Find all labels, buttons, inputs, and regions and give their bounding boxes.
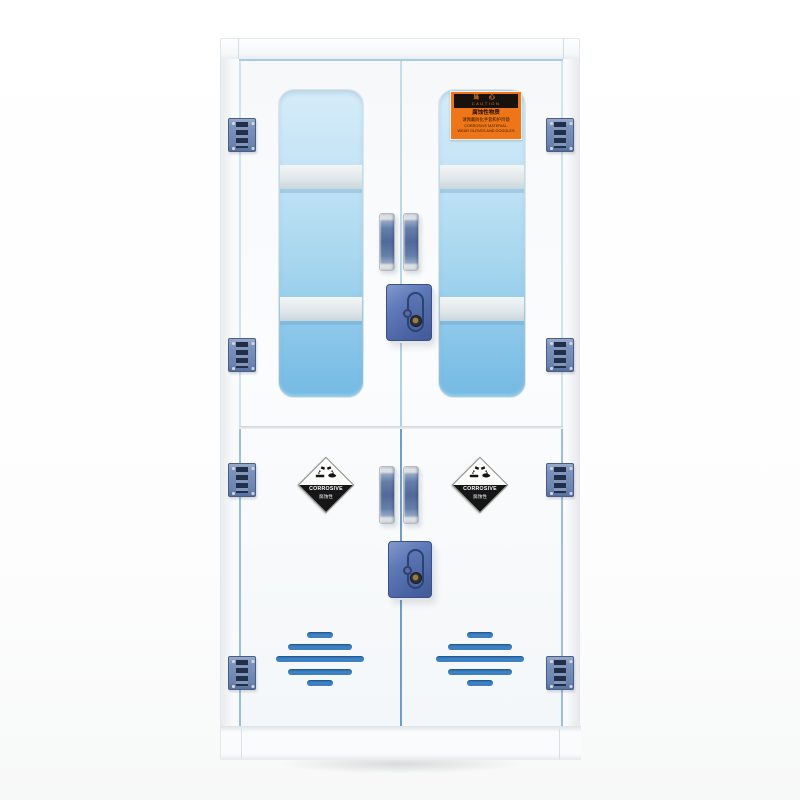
top-right-corner-seam xyxy=(563,39,564,59)
lock-cylinder xyxy=(410,572,422,584)
vent-group-left xyxy=(276,632,364,686)
caution-label-header: 当 心 CAUTION xyxy=(454,94,518,108)
vent-slot xyxy=(288,669,352,675)
kick-panel xyxy=(221,726,581,760)
corrosive-label-left: CORROSIVE 腐蚀性 xyxy=(298,457,354,513)
corrosive-word-cn: 腐蚀性 xyxy=(298,494,354,500)
kick-left-seam xyxy=(241,729,242,759)
corrosive-label-right: CORROSIVE 腐蚀性 xyxy=(452,457,508,513)
lower-left-door-handle xyxy=(379,466,395,524)
upper-left-door-handle xyxy=(379,213,395,271)
safety-cabinet: 当 心 CAUTION 腐蚀性物质 请佩戴防化手套和护目镜 CORROSIVE … xyxy=(220,38,580,760)
hinge xyxy=(228,656,256,690)
top-left-corner-seam xyxy=(238,39,239,59)
shelf xyxy=(280,165,362,189)
hinge xyxy=(228,338,256,372)
left-door-window xyxy=(278,89,364,398)
upper-door-lock xyxy=(386,284,432,341)
corrosive-word: CORROSIVE xyxy=(298,486,354,492)
lock-cylinder xyxy=(410,315,422,327)
corrosive-pictogram-icon xyxy=(469,466,492,479)
upper-door-gap xyxy=(400,61,402,426)
hinge xyxy=(228,118,256,152)
caution-instruction-en: WEAR GLOVES AND GOGGLES xyxy=(454,129,518,134)
vent-slot xyxy=(307,632,333,638)
vent-slot xyxy=(467,632,493,638)
hinge xyxy=(546,118,574,152)
caution-instruction-cn: 请佩戴防化手套和护目镜 xyxy=(454,117,518,123)
shelf xyxy=(280,297,362,321)
product-photo: 当 心 CAUTION 腐蚀性物质 请佩戴防化手套和护目镜 CORROSIVE … xyxy=(0,0,800,800)
lower-right-door-handle xyxy=(403,466,419,524)
vent-slot xyxy=(467,680,493,686)
vent-slot xyxy=(448,669,512,675)
vent-slot xyxy=(288,644,352,650)
left-side-panel xyxy=(221,59,239,726)
vent-slot xyxy=(276,656,364,662)
vent-slot xyxy=(307,680,333,686)
right-side-panel xyxy=(561,59,579,726)
vent-slot xyxy=(448,644,512,650)
keyhole xyxy=(407,549,424,589)
caution-label: 当 心 CAUTION 腐蚀性物质 请佩戴防化手套和护目镜 CORROSIVE … xyxy=(450,91,522,140)
vent-group-right xyxy=(436,632,524,686)
cabinet-top-panel xyxy=(221,39,579,59)
vent-slot xyxy=(436,656,524,662)
caution-en-text: CAUTION xyxy=(454,102,518,107)
keyhole xyxy=(407,292,424,332)
shelf xyxy=(440,297,524,321)
corrosive-word-cn: 腐蚀性 xyxy=(452,494,508,500)
upper-right-door-handle xyxy=(403,213,419,271)
lower-door-lock xyxy=(388,541,432,598)
hinge xyxy=(546,656,574,690)
corrosive-label-content: CORROSIVE 腐蚀性 xyxy=(452,457,508,513)
kick-right-seam xyxy=(559,729,560,759)
corrosive-word: CORROSIVE xyxy=(452,486,508,492)
shelf xyxy=(440,165,524,189)
corrosive-pictogram-icon xyxy=(315,466,338,479)
hinge xyxy=(546,338,574,372)
hinge xyxy=(228,463,256,497)
corrosive-label-content: CORROSIVE 腐蚀性 xyxy=(298,457,354,513)
hinge xyxy=(546,463,574,497)
